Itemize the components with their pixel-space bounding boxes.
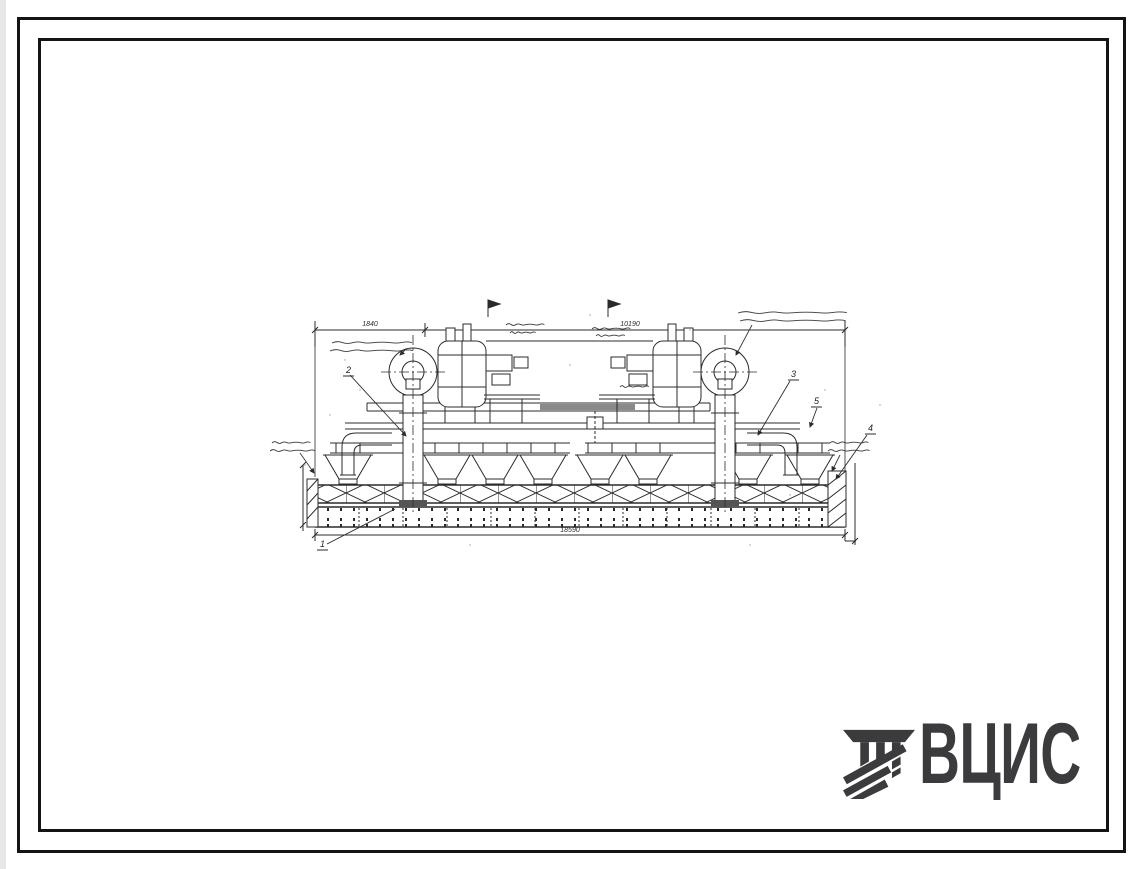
dim-label-top-span: 10190 — [620, 321, 640, 328]
callout-2: 2 — [345, 365, 351, 375]
dim-label-top-left: 1840 — [362, 321, 378, 328]
vcis-logo: ВЦИС — [843, 718, 1093, 818]
end-plate-right — [828, 463, 858, 545]
dimension-bottom — [312, 529, 848, 541]
section-flags — [488, 300, 620, 317]
vcis-logo-icon — [843, 726, 915, 800]
blueprint-page: 1840 10190 18590 1 2 3 4 5 ВЦИС — [0, 0, 1139, 869]
callout-5: 5 — [814, 396, 820, 406]
vcis-logo-text: ВЦИС — [919, 711, 1081, 797]
callout-1: 1 — [320, 539, 325, 549]
callout-3: 3 — [791, 369, 796, 379]
scan-edge-shadow — [0, 0, 6, 869]
hopper-row — [323, 455, 835, 484]
technical-drawing: 1840 10190 18590 1 2 3 4 5 — [270, 295, 900, 575]
dim-label-bottom-overall: 18590 — [560, 527, 580, 534]
callout-4: 4 — [868, 423, 873, 433]
truss — [315, 485, 845, 527]
